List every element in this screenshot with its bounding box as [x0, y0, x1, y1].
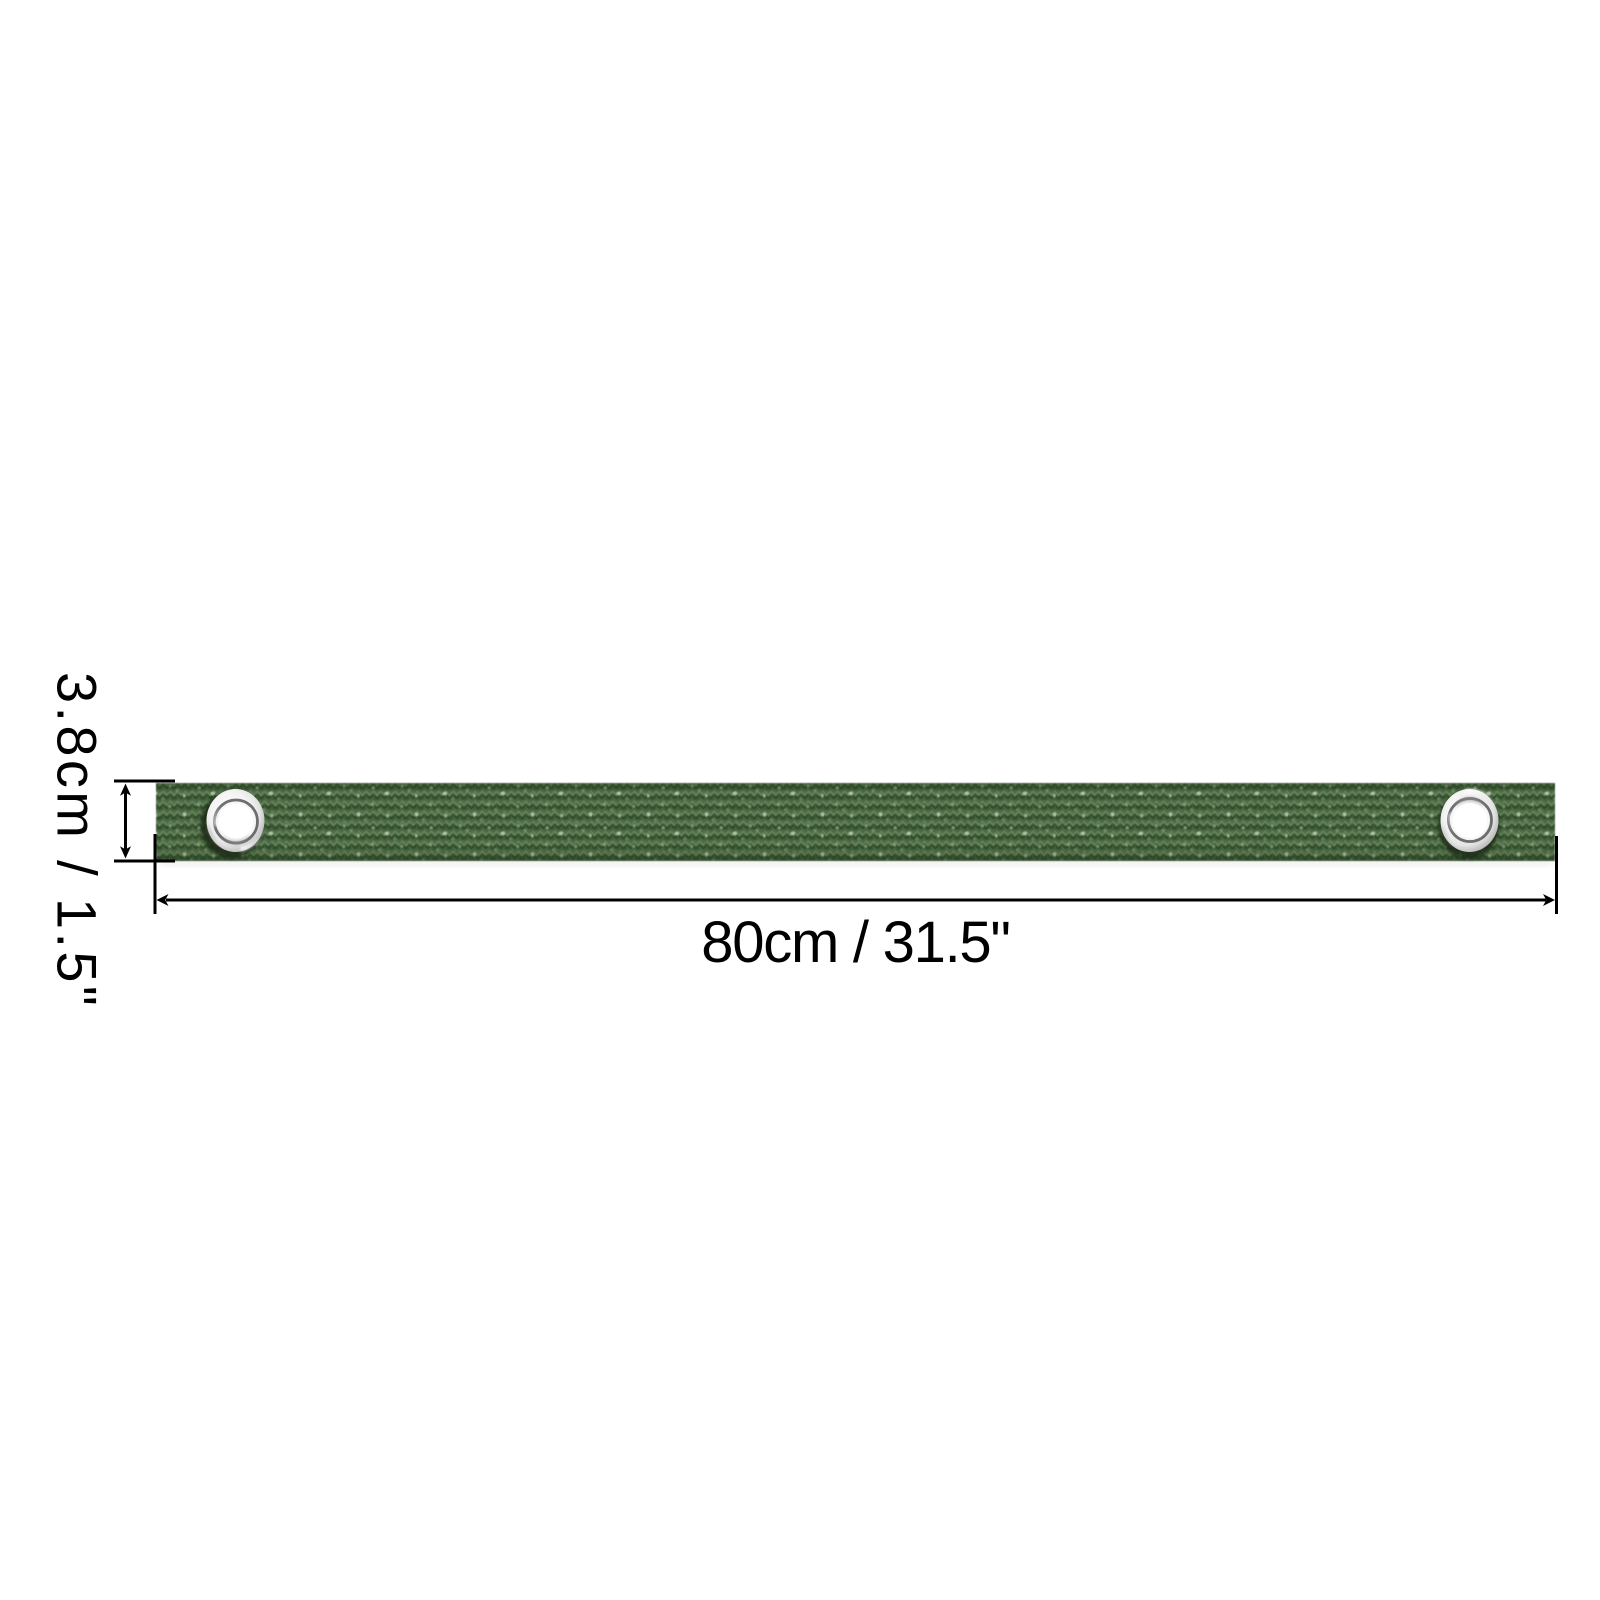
svg-text:3.8cm / 1.5": 3.8cm / 1.5": [46, 672, 109, 1009]
svg-text:80cm / 31.5": 80cm / 31.5": [701, 910, 1010, 975]
